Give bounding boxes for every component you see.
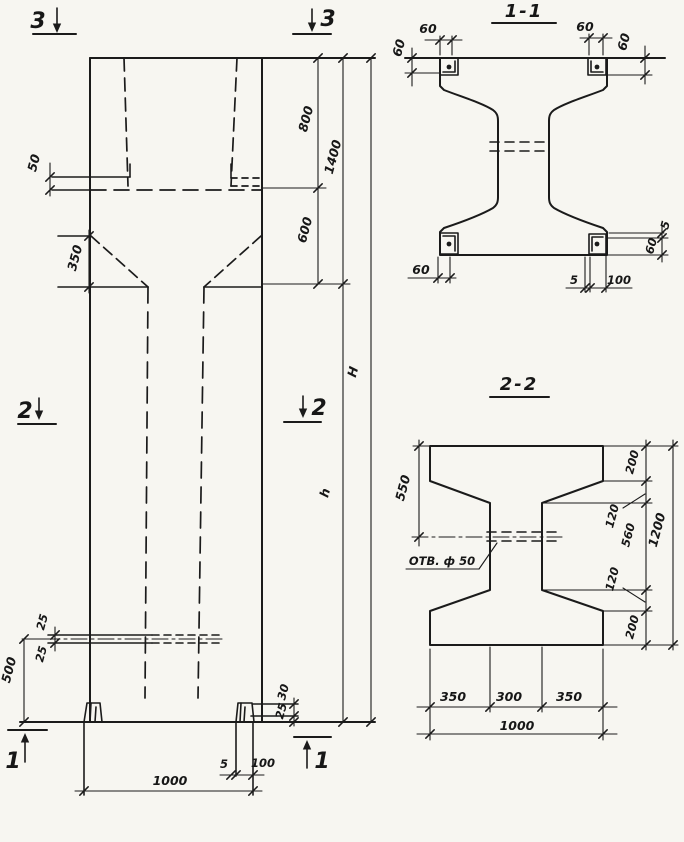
marker-3-right: 3 — [293, 7, 336, 34]
dim-200-top: 200 — [622, 449, 642, 476]
section-1-1: 1-1 — [389, 1, 673, 292]
dim-60-top-left: 60 — [419, 21, 437, 36]
dim-350: 350 — [64, 243, 85, 272]
corner-plates — [440, 58, 606, 254]
section-1-1-title: 1-1 — [505, 1, 544, 22]
marker-2-left-label: 2 — [17, 399, 32, 424]
elevation-dim-lines — [22, 58, 371, 791]
section-1-1-outline — [405, 58, 665, 255]
dim-500: 500 — [0, 655, 19, 684]
column-outline — [20, 58, 375, 722]
dim-60-bottom-left: 60 — [412, 262, 430, 277]
marker-2-right: 2 — [284, 396, 327, 422]
dim-350-left: 350 — [440, 689, 466, 704]
hole-label: ОТВ. ф 50 — [409, 554, 475, 568]
dim-h: h — [316, 487, 333, 500]
dim-25-top: 25 — [33, 612, 51, 631]
dim-550: 550 — [392, 473, 413, 502]
dim-5-foot: 5 — [220, 757, 228, 771]
dim-60-left: 60 — [389, 37, 408, 58]
dim-1000: 1000 — [153, 773, 188, 788]
section-markers: 3 3 2 2 1 1 — [5, 7, 335, 774]
dim-1200: 1200 — [645, 511, 669, 549]
marker-3-right-label: 3 — [320, 7, 335, 32]
dim-5-bottom: 5 — [570, 273, 578, 287]
dim-5-right: 5 — [657, 219, 673, 230]
dim-60-top-right: 60 — [576, 19, 594, 34]
marker-3-left: 3 — [30, 8, 76, 34]
section-2-2-hole: ОТВ. ф 50 — [406, 532, 562, 569]
drawing-sheet: 50 350 800 1400 600 H h 25 25 500 30 25 … — [0, 0, 684, 842]
dim-300: 300 — [496, 689, 522, 704]
marker-2-left: 2 — [17, 398, 56, 424]
dim-100-bottom: 100 — [607, 273, 631, 287]
dim-H: H — [344, 364, 361, 379]
dim-120-top: 120 — [602, 503, 622, 530]
hidden-lines — [91, 58, 262, 698]
section-2-2-outline — [430, 446, 603, 645]
dim-560: 560 — [618, 522, 638, 549]
section-2-2-title: 2-2 — [500, 374, 539, 395]
dim-1000-section: 1000 — [500, 718, 535, 733]
dim-100-foot: 100 — [251, 756, 275, 770]
dim-350-right: 350 — [556, 689, 582, 704]
marker-2-right-label: 2 — [311, 396, 326, 421]
marker-1-left: 1 — [5, 730, 47, 774]
dim-60-right: 60 — [614, 31, 633, 52]
marker-1-right-label: 1 — [314, 749, 329, 774]
dim-600: 600 — [294, 215, 315, 244]
technical-drawing: 50 350 800 1400 600 H h 25 25 500 30 25 … — [0, 0, 684, 842]
dim-25-bottom: 25 — [32, 644, 50, 663]
dim-60-right-bottom: 60 — [642, 236, 660, 255]
column-feet — [84, 703, 298, 795]
dim-800: 800 — [295, 104, 316, 133]
section-2-2: 2-2 ОТВ. ф 50 — [392, 374, 678, 740]
marker-1-left-label: 1 — [5, 749, 20, 774]
dim-30: 30 — [274, 682, 292, 701]
marker-3-left-label: 3 — [30, 9, 45, 34]
dim-50: 50 — [24, 152, 43, 173]
dim-200-bottom: 200 — [622, 614, 642, 641]
marker-1-right: 1 — [294, 737, 331, 774]
dim-120-bottom: 120 — [602, 566, 622, 593]
dim-1400: 1400 — [321, 138, 345, 176]
